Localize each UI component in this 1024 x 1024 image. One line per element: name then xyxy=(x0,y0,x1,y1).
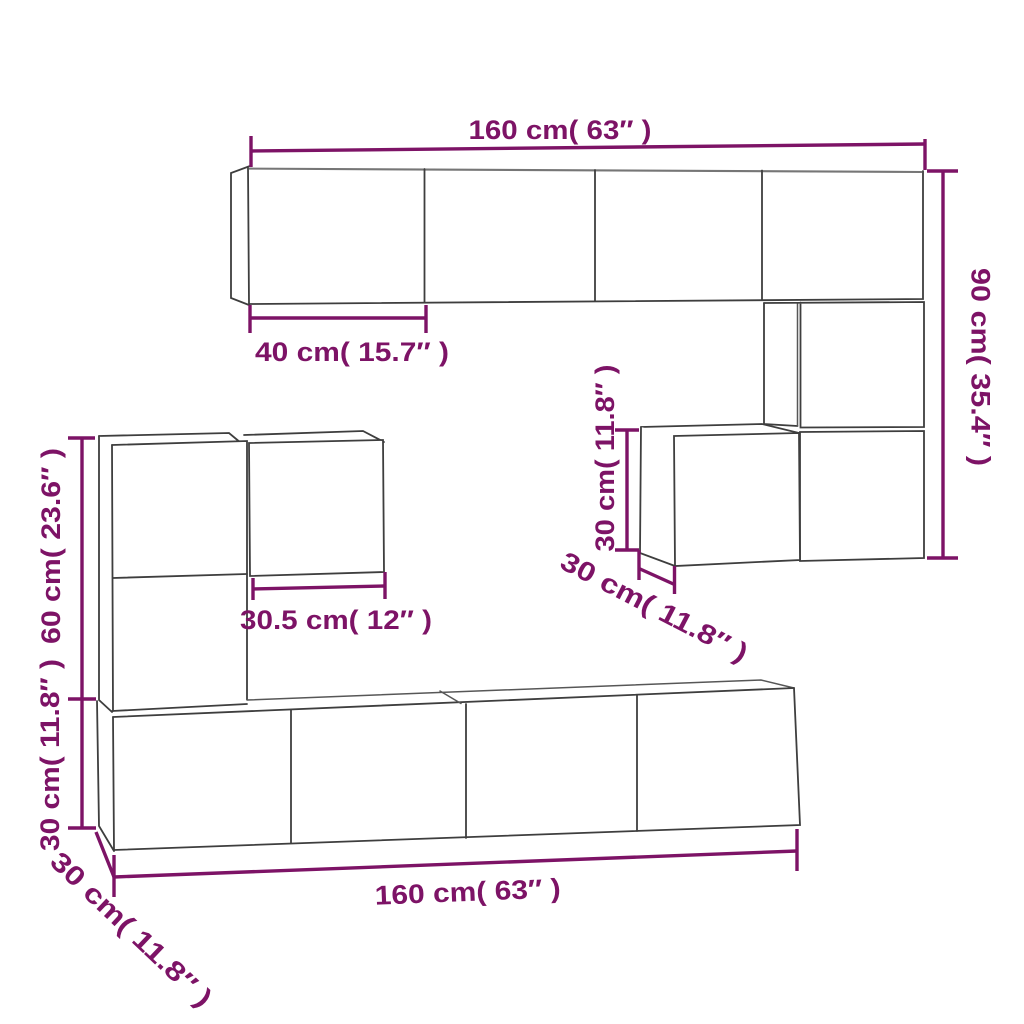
svg-text:30 cm( 11.8″ ): 30 cm( 11.8″ ) xyxy=(590,365,620,552)
svg-text:40 cm( 15.7″ ): 40 cm( 15.7″ ) xyxy=(255,337,449,367)
svg-text:60 cm( 23.6″ ): 60 cm( 23.6″ ) xyxy=(36,448,66,644)
svg-text:160 cm( 63″ ): 160 cm( 63″ ) xyxy=(374,873,561,910)
svg-text:160 cm( 63″ ): 160 cm( 63″ ) xyxy=(469,115,652,145)
svg-text:30.5 cm( 12″ ): 30.5 cm( 12″ ) xyxy=(240,605,432,635)
svg-text:30 cm( 11.8″ ): 30 cm( 11.8″ ) xyxy=(35,659,65,851)
svg-text:30 cm( 11.8″ ): 30 cm( 11.8″ ) xyxy=(44,846,218,1013)
svg-text:90 cm( 35.4″ ): 90 cm( 35.4″ ) xyxy=(966,268,996,466)
